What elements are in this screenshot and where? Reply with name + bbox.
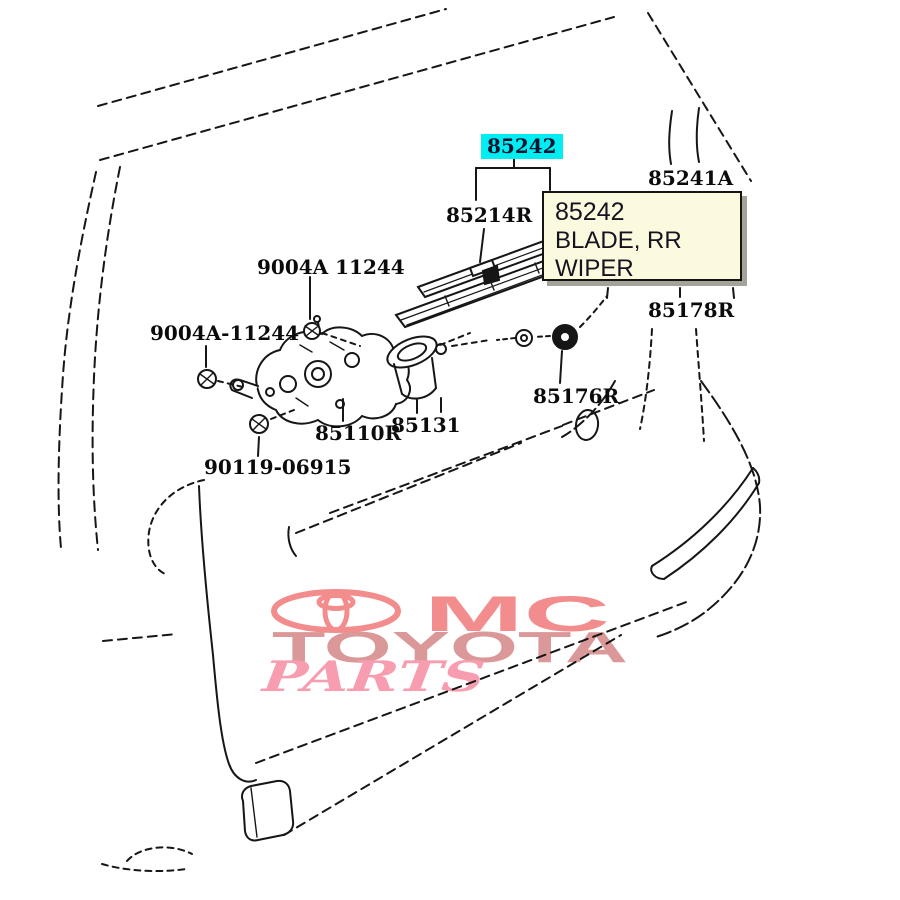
part-label-85176R[interactable]: 85176R [533, 385, 619, 407]
part-label-9004A-11244-lower[interactable]: 9004A-11244 [150, 322, 299, 344]
diagram-line-art: MC TOYOTA PARTS [0, 0, 900, 900]
part-label-85214R[interactable]: 85214R [446, 204, 532, 226]
vehicle-outline [59, 9, 761, 871]
part-label-85178R[interactable]: 85178R [648, 299, 734, 321]
part-label-9004A-11244-upper[interactable]: 9004A 11244 [257, 256, 405, 278]
part-label-85241A[interactable]: 85241A [648, 167, 733, 189]
part-label-85131[interactable]: 85131 [391, 414, 461, 436]
part-tooltip: 85242 BLADE, RR WIPER [542, 191, 742, 281]
tooltip-part-code: 85242 [555, 198, 732, 227]
tooltip-part-name: BLADE, RR WIPER [555, 227, 732, 283]
parts-diagram-page: MC TOYOTA PARTS [0, 0, 900, 900]
part-label-85110R[interactable]: 85110R [315, 422, 401, 444]
part-label-85242[interactable]: 85242 [481, 134, 563, 159]
watermark-parts: PARTS [259, 651, 488, 701]
part-label-90119-06915[interactable]: 90119-06915 [204, 456, 351, 478]
